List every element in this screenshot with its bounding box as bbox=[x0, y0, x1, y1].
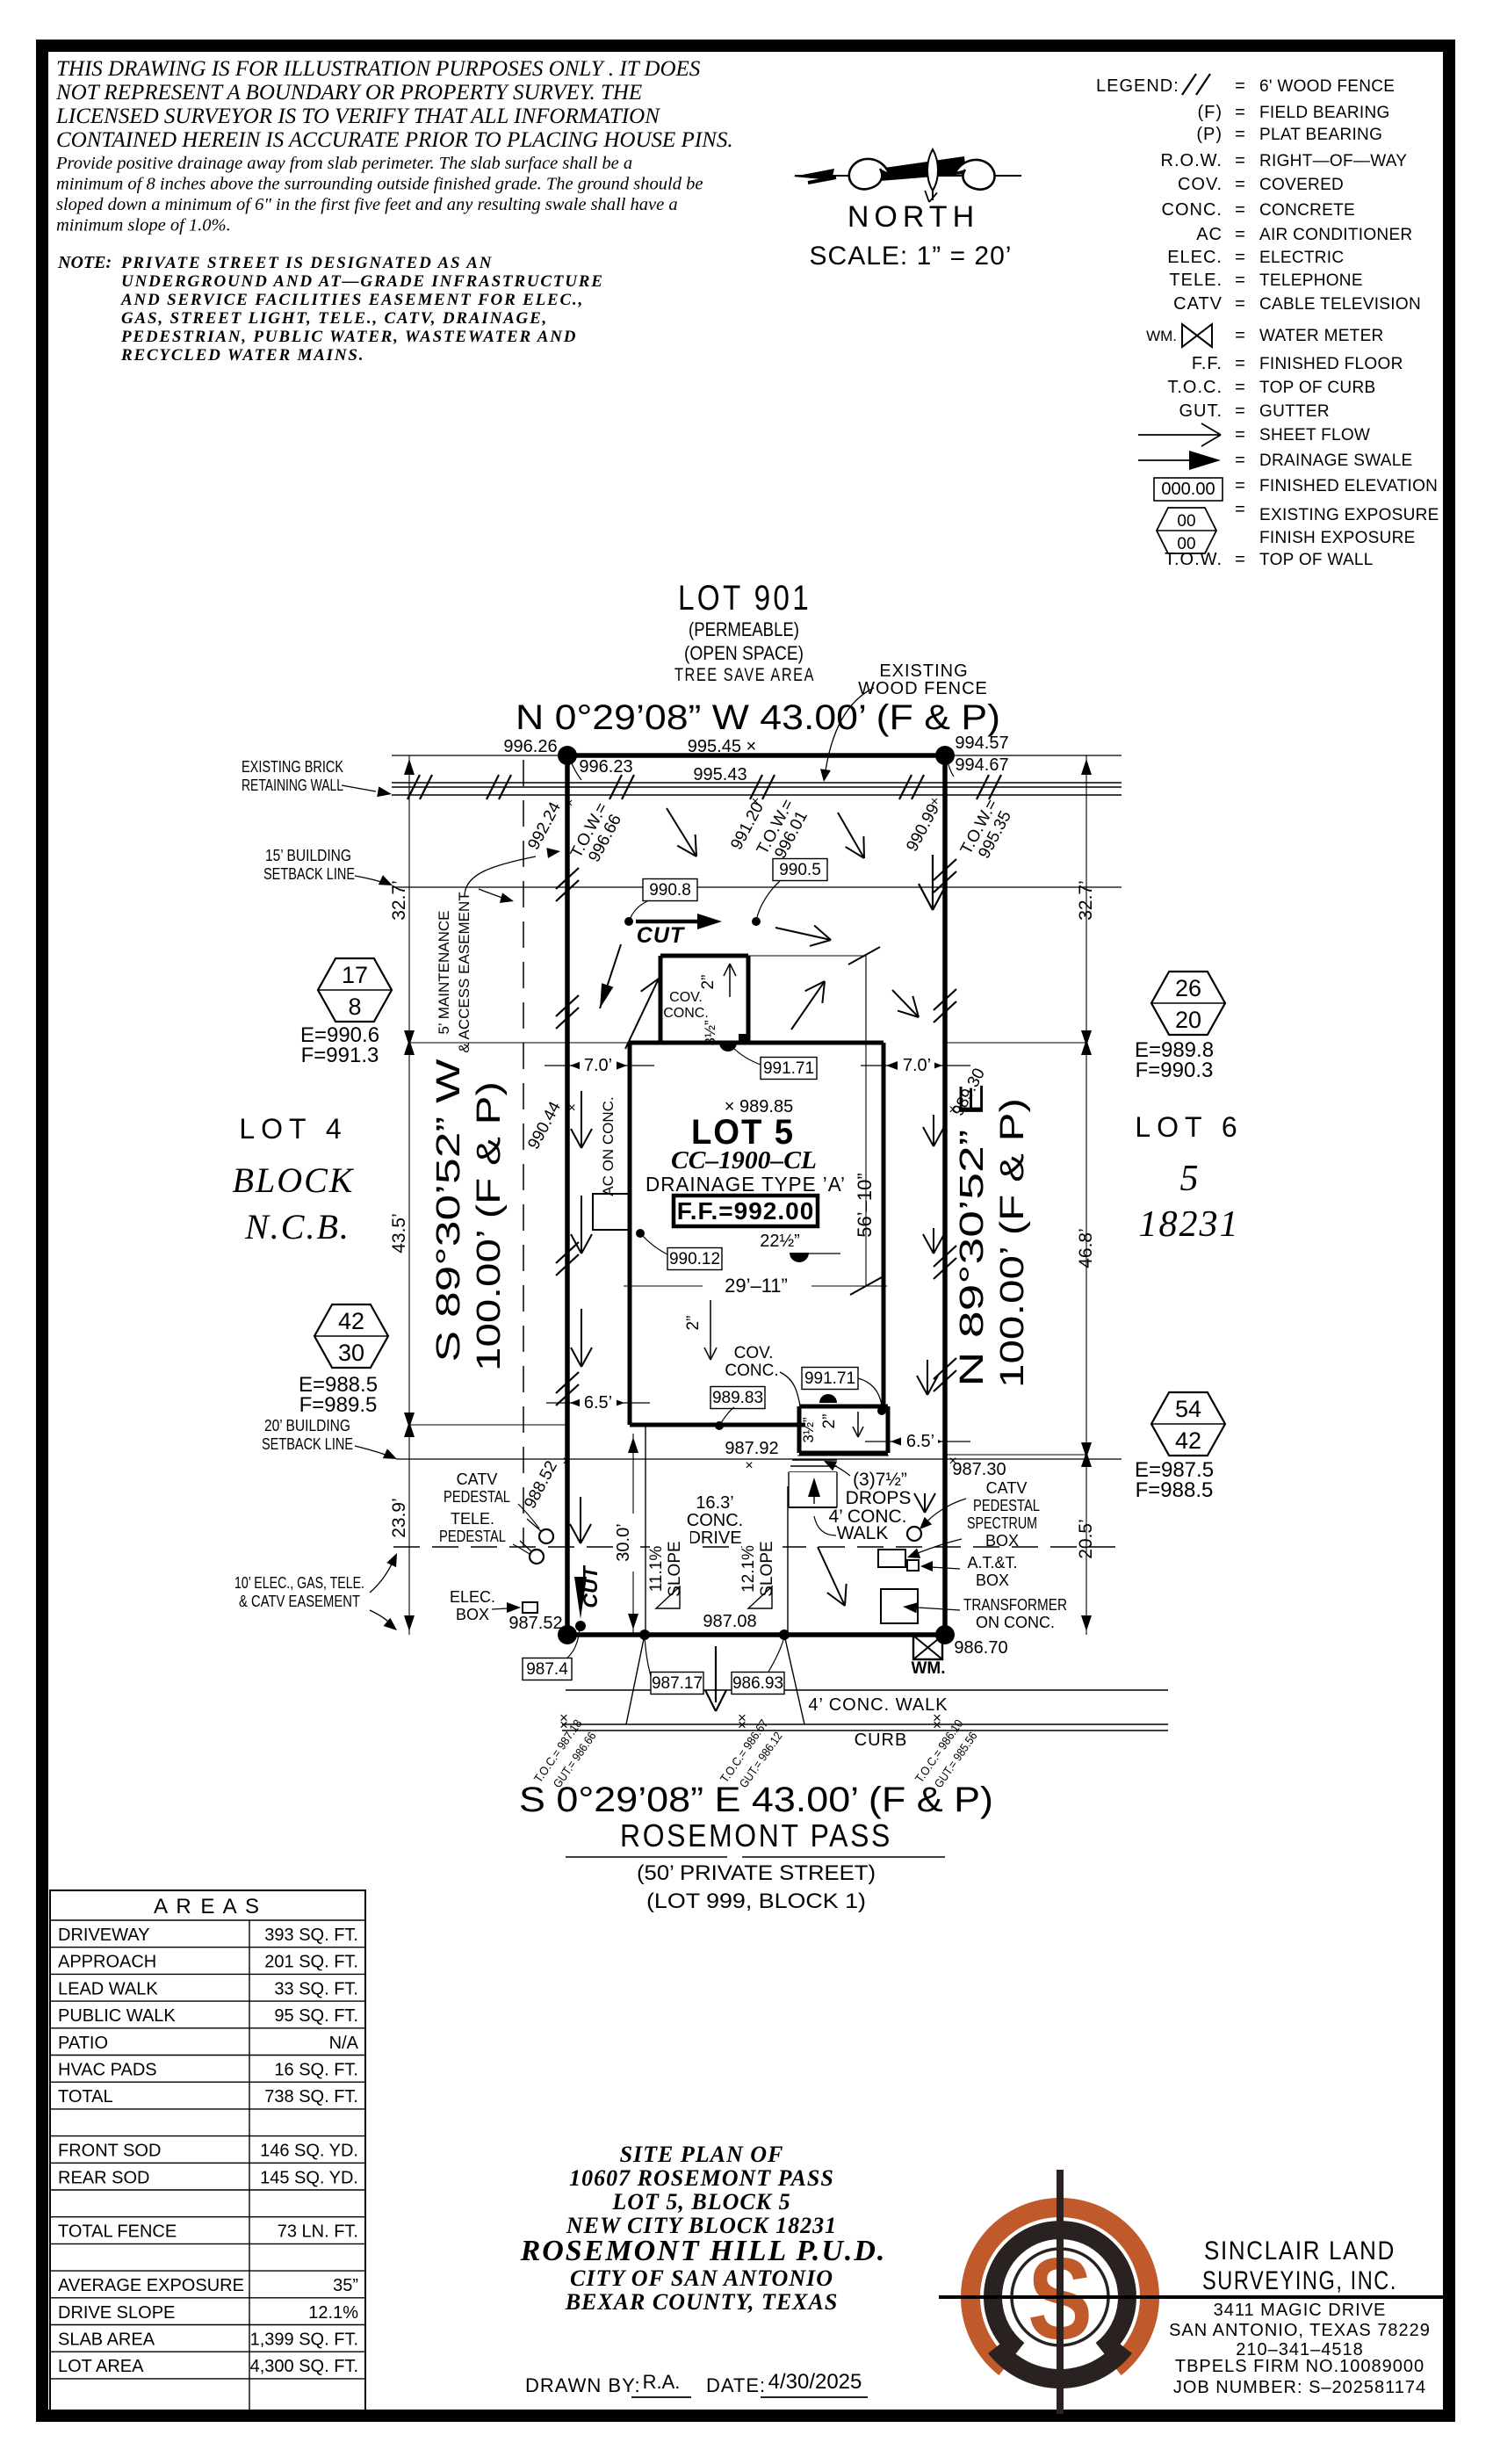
svg-text:F=988.5: F=988.5 bbox=[1136, 1478, 1214, 1502]
svg-text:NOT REPRESENT A BOUNDARY OR PR: NOT REPRESENT A BOUNDARY OR PROPERTY SUR… bbox=[55, 81, 642, 105]
svg-text:(50’ PRIVATE STREET): (50’ PRIVATE STREET) bbox=[637, 1861, 876, 1885]
svg-text:11.1%: 11.1% bbox=[647, 1546, 666, 1593]
svg-text:=: = bbox=[1235, 76, 1245, 96]
svg-text:=: = bbox=[1235, 248, 1245, 267]
svg-text:994.67: 994.67 bbox=[955, 755, 1008, 775]
svg-text:73 LN. FT.: 73 LN. FT. bbox=[278, 2222, 358, 2242]
svg-text:000.00: 000.00 bbox=[1161, 480, 1215, 499]
svg-text:42: 42 bbox=[1175, 1427, 1201, 1454]
svg-text:COV.: COV. bbox=[1178, 175, 1223, 194]
svg-text:TOP OF CURB: TOP OF CURB bbox=[1259, 379, 1375, 397]
svg-text:22½”: 22½” bbox=[760, 1232, 800, 1251]
svg-text:CATV: CATV bbox=[457, 1470, 498, 1488]
svg-text:990.12: 990.12 bbox=[669, 1250, 720, 1268]
svg-text:LOT 5, BLOCK 5: LOT 5, BLOCK 5 bbox=[611, 2189, 790, 2215]
svg-text:CC–1900–CL: CC–1900–CL bbox=[671, 1146, 817, 1174]
svg-text:& CATV EASEMENT: & CATV EASEMENT bbox=[239, 1593, 360, 1610]
svg-text:N.C.B.: N.C.B. bbox=[244, 1207, 350, 1246]
svg-text:=: = bbox=[1235, 401, 1245, 421]
svg-text:THIS DRAWING IS FOR ILLUSTRATI: THIS DRAWING IS FOR ILLUSTRATION PURPOSE… bbox=[56, 57, 701, 81]
svg-text:RECYCLED WATER MAINS.: RECYCLED WATER MAINS. bbox=[120, 346, 364, 365]
svg-text:Provide positive drainage away: Provide positive drainage away from slab… bbox=[55, 154, 632, 173]
svg-text:95 SQ. FT.: 95 SQ. FT. bbox=[274, 2006, 358, 2026]
svg-text:N/A: N/A bbox=[329, 2034, 359, 2053]
svg-text:REAR SOD: REAR SOD bbox=[58, 2168, 149, 2187]
svg-text:987.92: 987.92 bbox=[725, 1439, 778, 1458]
svg-text:minimum of 8 inches above the: minimum of 8 inches above the surroundin… bbox=[56, 175, 703, 194]
svg-text:FINISHED ELEVATION: FINISHED ELEVATION bbox=[1259, 477, 1438, 495]
svg-text:F.F.: F.F. bbox=[1192, 354, 1223, 373]
svg-text:sloped down a minimum of 6" in: sloped down a minimum of 6" in the first… bbox=[56, 195, 678, 214]
svg-text:SAN ANTONIO, TEXAS 78229: SAN ANTONIO, TEXAS 78229 bbox=[1169, 2321, 1431, 2340]
svg-text:33 SQ. FT.: 33 SQ. FT. bbox=[274, 1979, 358, 1998]
svg-text:32.7’: 32.7’ bbox=[1076, 880, 1096, 921]
svg-text:990.5: 990.5 bbox=[779, 861, 821, 879]
svg-text:LOT AREA: LOT AREA bbox=[58, 2357, 144, 2376]
svg-text:990.8: 990.8 bbox=[649, 881, 691, 900]
svg-text:BOX: BOX bbox=[976, 1572, 1009, 1589]
svg-text:CABLE TELEVISION: CABLE TELEVISION bbox=[1259, 295, 1421, 314]
svg-text:LOT 6: LOT 6 bbox=[1135, 1111, 1243, 1143]
svg-text:SURVEYING, INC.: SURVEYING, INC. bbox=[1202, 2266, 1397, 2295]
svg-text:×: × bbox=[933, 1709, 941, 1726]
svg-text:995.43: 995.43 bbox=[693, 765, 746, 784]
svg-text:CATV: CATV bbox=[1173, 294, 1223, 314]
svg-text:FIELD BEARING: FIELD BEARING bbox=[1259, 104, 1390, 122]
svg-text:TOP OF WALL: TOP OF WALL bbox=[1259, 551, 1374, 569]
svg-text:CITY OF SAN ANTONIO: CITY OF SAN ANTONIO bbox=[570, 2265, 833, 2291]
svg-text:32.7’: 32.7’ bbox=[389, 880, 409, 921]
svg-text:=: = bbox=[1235, 103, 1245, 122]
svg-text:987.52: 987.52 bbox=[508, 1614, 562, 1633]
svg-text:16 SQ. FT.: 16 SQ. FT. bbox=[274, 2061, 358, 2080]
svg-text:=: = bbox=[1235, 175, 1245, 194]
svg-text:23.9’: 23.9’ bbox=[389, 1498, 409, 1538]
svg-text:CONC.: CONC. bbox=[725, 1362, 778, 1380]
svg-text:CURB: CURB bbox=[855, 1731, 908, 1750]
svg-text:PEDESTRIAN, PUBLIC WATER, WAST: PEDESTRIAN, PUBLIC WATER, WASTEWATER AND bbox=[120, 328, 577, 346]
svg-text:HVAC PADS: HVAC PADS bbox=[58, 2061, 157, 2080]
svg-text:DRIVE: DRIVE bbox=[688, 1528, 741, 1548]
svg-text:4,300 SQ. FT.: 4,300 SQ. FT. bbox=[250, 2357, 358, 2376]
svg-text:LICENSED SURVEYOR IS TO VERIFY: LICENSED SURVEYOR IS TO VERIFY THAT ALL … bbox=[55, 105, 660, 128]
svg-text:100.00’ (F & P): 100.00’ (F & P) bbox=[994, 1098, 1031, 1388]
svg-text:987.4: 987.4 bbox=[526, 1660, 568, 1679]
svg-text:=: = bbox=[1235, 326, 1245, 345]
svg-text:BLOCK: BLOCK bbox=[233, 1160, 355, 1200]
svg-text:20.5’: 20.5’ bbox=[1076, 1519, 1096, 1559]
svg-text:=: = bbox=[1235, 425, 1245, 444]
svg-text:CONCRETE: CONCRETE bbox=[1259, 201, 1355, 220]
svg-text:PUBLIC WALK: PUBLIC WALK bbox=[58, 2006, 176, 2026]
svg-text:RETAINING WALL: RETAINING WALL bbox=[242, 777, 343, 794]
svg-text:ROSEMONT PASS: ROSEMONT PASS bbox=[620, 1817, 892, 1853]
svg-text:EXISTING EXPOSURE: EXISTING EXPOSURE bbox=[1259, 506, 1439, 524]
svg-text:SLOPE: SLOPE bbox=[666, 1541, 684, 1596]
svg-text:145 SQ. YD.: 145 SQ. YD. bbox=[260, 2168, 358, 2187]
svg-text:CATV: CATV bbox=[986, 1479, 1028, 1497]
svg-text:(LOT 999, BLOCK 1): (LOT 999, BLOCK 1) bbox=[646, 1890, 866, 1913]
svg-text:BEXAR COUNTY, TEXAS: BEXAR COUNTY, TEXAS bbox=[565, 2289, 839, 2315]
svg-text:994.57: 994.57 bbox=[955, 733, 1008, 753]
svg-text:15’ BUILDING: 15’ BUILDING bbox=[265, 847, 351, 864]
svg-text:=: = bbox=[1235, 200, 1245, 220]
svg-text:GUTTER: GUTTER bbox=[1259, 402, 1330, 421]
svg-text:CONTAINED HEREIN IS ACCURATE P: CONTAINED HEREIN IS ACCURATE PRIOR TO PL… bbox=[56, 128, 733, 152]
svg-text:3411 MAGIC DRIVE: 3411 MAGIC DRIVE bbox=[1214, 2301, 1387, 2320]
svg-text:AND SERVICE FACILITIES EASEMEN: AND SERVICE FACILITIES EASEMENT FOR ELEC… bbox=[120, 291, 584, 309]
svg-text:12.1%: 12.1% bbox=[739, 1545, 758, 1593]
svg-text:54: 54 bbox=[1175, 1396, 1201, 1422]
svg-text:20’ BUILDING: 20’ BUILDING bbox=[264, 1417, 350, 1434]
svg-text:30: 30 bbox=[338, 1340, 364, 1366]
svg-text:738 SQ. FT.: 738 SQ. FT. bbox=[264, 2087, 358, 2106]
svg-text:987.08: 987.08 bbox=[703, 1612, 756, 1631]
svg-text:986.93: 986.93 bbox=[732, 1674, 783, 1693]
svg-text:A R E A S: A R E A S bbox=[154, 1895, 261, 1918]
svg-text:A.T.&T.: A.T.&T. bbox=[967, 1554, 1017, 1572]
svg-text:ELECTRIC: ELECTRIC bbox=[1259, 249, 1344, 267]
svg-text:CONC.: CONC. bbox=[663, 1006, 709, 1021]
svg-text:(F): (F) bbox=[1197, 103, 1223, 122]
svg-text:=: = bbox=[1235, 151, 1245, 170]
svg-text:LEGEND:: LEGEND: bbox=[1096, 76, 1179, 96]
svg-text:T.O.C.: T.O.C. bbox=[1167, 378, 1223, 397]
svg-text:00: 00 bbox=[1177, 512, 1195, 531]
svg-text:AC: AC bbox=[1196, 225, 1223, 244]
svg-text:PATIO: PATIO bbox=[58, 2034, 108, 2053]
svg-text:CONC.: CONC. bbox=[687, 1511, 743, 1530]
svg-text:(P): (P) bbox=[1196, 125, 1223, 144]
svg-text:LOT 4: LOT 4 bbox=[239, 1113, 347, 1145]
svg-text:×: × bbox=[566, 796, 573, 811]
svg-text:DROPS: DROPS bbox=[846, 1488, 912, 1508]
svg-text:SCALE: 1” = 20’: SCALE: 1” = 20’ bbox=[810, 242, 1013, 271]
svg-text:3½”: 3½” bbox=[800, 1417, 817, 1443]
svg-text:26: 26 bbox=[1175, 975, 1201, 1001]
svg-text:=: = bbox=[1235, 500, 1245, 519]
svg-text:EXISTING: EXISTING bbox=[879, 661, 968, 681]
svg-text:S 0°29’08” E 43.00’ (F & P): S 0°29’08” E 43.00’ (F & P) bbox=[519, 1781, 993, 1819]
svg-text:=: = bbox=[1235, 550, 1245, 569]
svg-text:8: 8 bbox=[348, 994, 361, 1020]
svg-text:AVERAGE EXPOSURE: AVERAGE EXPOSURE bbox=[58, 2276, 244, 2295]
svg-text:PEDESTAL: PEDESTAL bbox=[973, 1497, 1040, 1514]
svg-text:APPROACH: APPROACH bbox=[58, 1953, 156, 1972]
svg-text:LOT 901: LOT 901 bbox=[678, 579, 811, 618]
svg-text:PEDESTAL: PEDESTAL bbox=[444, 1488, 510, 1506]
svg-text:(OPEN SPACE): (OPEN SPACE) bbox=[684, 642, 804, 664]
svg-text:R.A.: R.A. bbox=[643, 2371, 681, 2393]
svg-text:GUT.: GUT. bbox=[1179, 401, 1223, 421]
svg-text:RIGHT—OF—WAY: RIGHT—OF—WAY bbox=[1259, 152, 1407, 170]
svg-text:100.00’ (F & P): 100.00’ (F & P) bbox=[471, 1081, 508, 1371]
svg-text:393 SQ. FT.: 393 SQ. FT. bbox=[264, 1926, 358, 1945]
svg-text:29’–11”: 29’–11” bbox=[725, 1275, 788, 1297]
svg-text:987.30: 987.30 bbox=[952, 1460, 1006, 1479]
svg-text:TRANSFORMER: TRANSFORMER bbox=[963, 1596, 1067, 1614]
svg-text:00: 00 bbox=[1177, 535, 1195, 553]
svg-text:AC ON CONC.: AC ON CONC. bbox=[600, 1096, 617, 1196]
svg-text:TBPELS FIRM NO.10089000: TBPELS FIRM NO.10089000 bbox=[1175, 2357, 1424, 2376]
svg-text:WATER METER: WATER METER bbox=[1259, 327, 1384, 345]
svg-text:(PERMEABLE): (PERMEABLE) bbox=[689, 618, 799, 640]
svg-text:×: × bbox=[559, 1709, 568, 1726]
svg-text:LEAD WALK: LEAD WALK bbox=[58, 1979, 158, 1998]
svg-text:×: × bbox=[738, 1709, 746, 1726]
svg-text:35”: 35” bbox=[333, 2276, 358, 2295]
svg-text:56’–10”: 56’–10” bbox=[854, 1173, 876, 1237]
svg-text:46.8’: 46.8’ bbox=[1076, 1228, 1096, 1268]
svg-text:TELE.: TELE. bbox=[1169, 271, 1223, 290]
svg-text:JOB NUMBER: S–202581174: JOB NUMBER: S–202581174 bbox=[1173, 2378, 1426, 2397]
svg-text:ELEC.: ELEC. bbox=[450, 1588, 495, 1606]
svg-text:TOTAL: TOTAL bbox=[58, 2087, 113, 2106]
svg-text:R.O.W.: R.O.W. bbox=[1161, 151, 1223, 170]
svg-text:×: × bbox=[948, 1454, 956, 1469]
svg-text:1,399 SQ. FT.: 1,399 SQ. FT. bbox=[250, 2330, 358, 2350]
svg-text:DRAINAGE TYPE ’A’: DRAINAGE TYPE ’A’ bbox=[646, 1173, 846, 1196]
svg-text:2”: 2” bbox=[699, 975, 718, 990]
svg-text:SETBACK LINE: SETBACK LINE bbox=[263, 865, 355, 883]
svg-text:SLAB AREA: SLAB AREA bbox=[58, 2330, 155, 2350]
svg-text:6.5’: 6.5’ bbox=[584, 1393, 612, 1413]
svg-text:TOTAL FENCE: TOTAL FENCE bbox=[58, 2222, 177, 2242]
svg-text:FINISHED FLOOR: FINISHED FLOOR bbox=[1259, 355, 1403, 373]
svg-text:TELE.: TELE. bbox=[451, 1510, 494, 1528]
svg-text:6' WOOD FENCE: 6' WOOD FENCE bbox=[1259, 77, 1395, 96]
svg-text:PLAT BEARING: PLAT BEARING bbox=[1259, 126, 1382, 144]
svg-text:BOX: BOX bbox=[985, 1532, 1019, 1550]
svg-text:TELEPHONE: TELEPHONE bbox=[1259, 271, 1363, 290]
svg-text:FINISH EXPOSURE: FINISH EXPOSURE bbox=[1259, 529, 1416, 547]
svg-text:F=989.5: F=989.5 bbox=[299, 1393, 378, 1417]
svg-text:NOTE:: NOTE: bbox=[57, 253, 112, 272]
svg-text:17: 17 bbox=[342, 962, 368, 988]
svg-text:(3)7½”: (3)7½” bbox=[853, 1470, 907, 1490]
svg-text:×: × bbox=[752, 794, 760, 809]
svg-text:F=991.3: F=991.3 bbox=[301, 1044, 379, 1067]
svg-text:WALK: WALK bbox=[837, 1523, 889, 1543]
svg-text:F=990.3: F=990.3 bbox=[1136, 1059, 1214, 1082]
svg-text:995.45 ×: 995.45 × bbox=[688, 737, 756, 756]
svg-text:146 SQ. YD.: 146 SQ. YD. bbox=[260, 2142, 358, 2161]
svg-text:PRIVATE STREET IS DESIGNATED A: PRIVATE STREET IS DESIGNATED AS AN bbox=[120, 254, 493, 272]
svg-text:DATE:: DATE: bbox=[706, 2374, 766, 2396]
svg-text:SINCLAIR LAND: SINCLAIR LAND bbox=[1204, 2236, 1396, 2265]
svg-text:TREE SAVE AREA: TREE SAVE AREA bbox=[674, 665, 815, 685]
svg-text:991.71: 991.71 bbox=[804, 1369, 855, 1388]
svg-text:COVERED: COVERED bbox=[1259, 176, 1344, 194]
svg-text:EXISTING BRICK: EXISTING BRICK bbox=[242, 758, 343, 776]
svg-text:30.0’: 30.0’ bbox=[614, 1523, 633, 1561]
svg-text:CONC.: CONC. bbox=[1162, 200, 1223, 220]
svg-text:& ACCESS EASEMENT: & ACCESS EASEMENT bbox=[456, 892, 472, 1052]
svg-text:42: 42 bbox=[338, 1308, 364, 1334]
svg-text:N 89°30’52” E: N 89°30’52” E bbox=[954, 1084, 991, 1387]
svg-text:×: × bbox=[931, 794, 939, 809]
svg-text:996.26: 996.26 bbox=[503, 737, 557, 756]
svg-text:996.23: 996.23 bbox=[579, 757, 632, 777]
svg-text:=: = bbox=[1235, 451, 1245, 470]
svg-text:N 0°29’08” W 43.00’ (F & P): N 0°29’08” W 43.00’ (F & P) bbox=[516, 698, 1000, 737]
svg-text:S 89°30’52” W: S 89°30’52” W bbox=[430, 1059, 467, 1362]
svg-text:=: = bbox=[1235, 294, 1245, 314]
svg-text:2”: 2” bbox=[820, 1414, 839, 1429]
svg-text:20: 20 bbox=[1175, 1007, 1201, 1033]
svg-text:10607 ROSEMONT PASS: 10607 ROSEMONT PASS bbox=[569, 2165, 834, 2191]
svg-text:WOOD FENCE: WOOD FENCE bbox=[858, 679, 988, 698]
svg-text:43.5’: 43.5’ bbox=[389, 1213, 409, 1254]
svg-text:NORTH: NORTH bbox=[847, 200, 979, 234]
svg-text:4/30/2025: 4/30/2025 bbox=[768, 2370, 862, 2394]
svg-text:×: × bbox=[745, 1458, 753, 1473]
svg-text:18231: 18231 bbox=[1139, 1204, 1240, 1245]
svg-text:5’ MAINTENANCE: 5’ MAINTENANCE bbox=[436, 910, 452, 1034]
svg-text:DRIVE SLOPE: DRIVE SLOPE bbox=[58, 2303, 175, 2323]
svg-text:COV.: COV. bbox=[734, 1344, 774, 1362]
svg-text:ON CONC.: ON CONC. bbox=[976, 1614, 1055, 1631]
svg-text:991.71: 991.71 bbox=[763, 1059, 814, 1078]
svg-text:ROSEMONT HILL P.U.D.: ROSEMONT HILL P.U.D. bbox=[520, 2235, 887, 2267]
svg-text:987.17: 987.17 bbox=[652, 1674, 703, 1693]
svg-text:2”: 2” bbox=[684, 1316, 703, 1331]
svg-text:DRIVEWAY: DRIVEWAY bbox=[58, 1926, 149, 1945]
svg-text:DRAINAGE SWALE: DRAINAGE SWALE bbox=[1259, 452, 1413, 470]
svg-text:7.0’: 7.0’ bbox=[584, 1056, 612, 1075]
svg-text:=: = bbox=[1235, 125, 1245, 144]
svg-text:BOX: BOX bbox=[456, 1606, 489, 1623]
svg-text:201 SQ. FT.: 201 SQ. FT. bbox=[264, 1953, 358, 1972]
svg-text:5: 5 bbox=[1180, 1159, 1199, 1199]
svg-text:7.0’: 7.0’ bbox=[903, 1056, 931, 1075]
svg-text:×: × bbox=[562, 1454, 570, 1469]
svg-text:12.1%: 12.1% bbox=[308, 2303, 358, 2323]
svg-text:PEDESTAL: PEDESTAL bbox=[439, 1528, 506, 1545]
svg-text:989.83: 989.83 bbox=[712, 1389, 763, 1407]
svg-text:10’ ELEC., GAS, TELE.: 10’ ELEC., GAS, TELE. bbox=[234, 1574, 364, 1592]
svg-text:=: = bbox=[1235, 476, 1245, 495]
svg-text:FRONT SOD: FRONT SOD bbox=[58, 2142, 161, 2161]
svg-text:3½”: 3½” bbox=[702, 1020, 718, 1046]
svg-text:4’ CONC. WALK: 4’ CONC. WALK bbox=[808, 1695, 948, 1715]
svg-text:SPECTRUM: SPECTRUM bbox=[967, 1514, 1037, 1532]
svg-text:SETBACK LINE: SETBACK LINE bbox=[262, 1435, 353, 1453]
svg-text:COV.: COV. bbox=[669, 990, 703, 1005]
svg-text:CUT: CUT bbox=[637, 923, 686, 948]
svg-text:F.F.=992.00: F.F.=992.00 bbox=[677, 1197, 815, 1225]
svg-text:×: × bbox=[567, 1101, 575, 1116]
svg-text:SHEET FLOW: SHEET FLOW bbox=[1259, 426, 1370, 444]
svg-text:minimum slope of 1.0%.: minimum slope of 1.0%. bbox=[56, 216, 231, 235]
svg-text:WM.: WM. bbox=[1146, 328, 1177, 344]
svg-text:16.3’: 16.3’ bbox=[696, 1493, 733, 1513]
svg-text:=: = bbox=[1235, 378, 1245, 397]
svg-text:=: = bbox=[1235, 354, 1245, 373]
svg-text:=: = bbox=[1235, 225, 1245, 244]
svg-text:×: × bbox=[948, 1102, 956, 1117]
svg-text:WM.: WM. bbox=[911, 1659, 945, 1678]
svg-text:6.5’: 6.5’ bbox=[906, 1432, 934, 1451]
svg-text:ELEC.: ELEC. bbox=[1167, 248, 1223, 267]
svg-text:UNDERGROUND AND AT—GRADE INFRA: UNDERGROUND AND AT—GRADE INFRASTRUCTURE bbox=[121, 272, 604, 291]
svg-text:DRAWN BY:: DRAWN BY: bbox=[525, 2374, 641, 2396]
svg-text:SITE PLAN OF: SITE PLAN OF bbox=[620, 2142, 784, 2167]
svg-text:=: = bbox=[1235, 271, 1245, 290]
svg-text:986.70: 986.70 bbox=[954, 1638, 1007, 1658]
svg-text:GAS, STREET LIGHT, TELE., CATV: GAS, STREET LIGHT, TELE., CATV, DRAINAGE… bbox=[121, 309, 548, 328]
svg-text:AIR CONDITIONER: AIR CONDITIONER bbox=[1259, 226, 1412, 244]
svg-text:SLOPE: SLOPE bbox=[758, 1541, 776, 1596]
